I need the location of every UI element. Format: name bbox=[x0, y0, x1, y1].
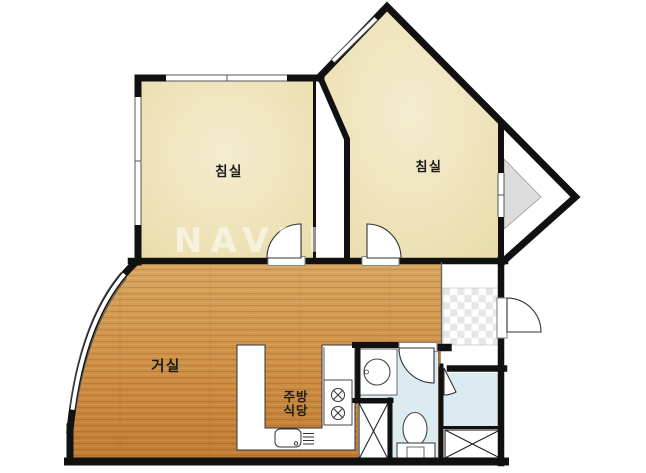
stove-burner-bottom bbox=[332, 407, 345, 420]
washbasin-faucet bbox=[365, 370, 369, 374]
toilet-bowl bbox=[403, 413, 427, 446]
stove-burner-top bbox=[332, 389, 345, 402]
room-label-bedroom-left: 침실 bbox=[215, 164, 243, 180]
room-label-living: 거실 bbox=[151, 358, 181, 375]
window-bay bbox=[498, 173, 505, 217]
window-bedroom-left-top bbox=[166, 75, 287, 82]
floor-plan-canvas: NAVER 침실 침실 거실 주방 식당 bbox=[0, 0, 646, 473]
room-label-kitchen-line1: 주방 bbox=[283, 389, 308, 404]
door-swing-entrance bbox=[507, 298, 541, 332]
watermark: NAVER bbox=[174, 221, 342, 261]
room-label-bedroom-right: 침실 bbox=[416, 159, 443, 175]
washer-closet-x bbox=[359, 403, 388, 459]
bay-window-triangle bbox=[504, 159, 541, 229]
shoe-closet-x bbox=[445, 430, 500, 458]
window-bedroom-left-side bbox=[135, 97, 142, 225]
door-sill-entrance bbox=[497, 298, 507, 338]
room-label-kitchen-line2: 식당 bbox=[283, 403, 308, 418]
entry-checker-tile bbox=[443, 288, 500, 345]
floor-plan: NAVER 침실 침실 거실 주방 식당 bbox=[0, 0, 646, 473]
